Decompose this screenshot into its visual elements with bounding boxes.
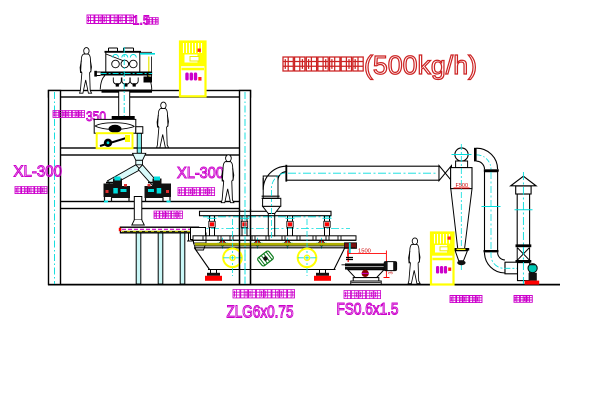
svg-text:XL-300: XL-300 <box>177 165 224 182</box>
svg-text:FS0.6x1.5: FS0.6x1.5 <box>337 300 399 319</box>
svg-text:1500: 1500 <box>358 249 371 255</box>
svg-text:ZLG6x0.75: ZLG6x0.75 <box>227 302 294 322</box>
svg-text:F500: F500 <box>456 183 469 189</box>
svg-text:(500kg/h): (500kg/h) <box>364 50 477 80</box>
svg-text:XL-300: XL-300 <box>14 164 63 181</box>
